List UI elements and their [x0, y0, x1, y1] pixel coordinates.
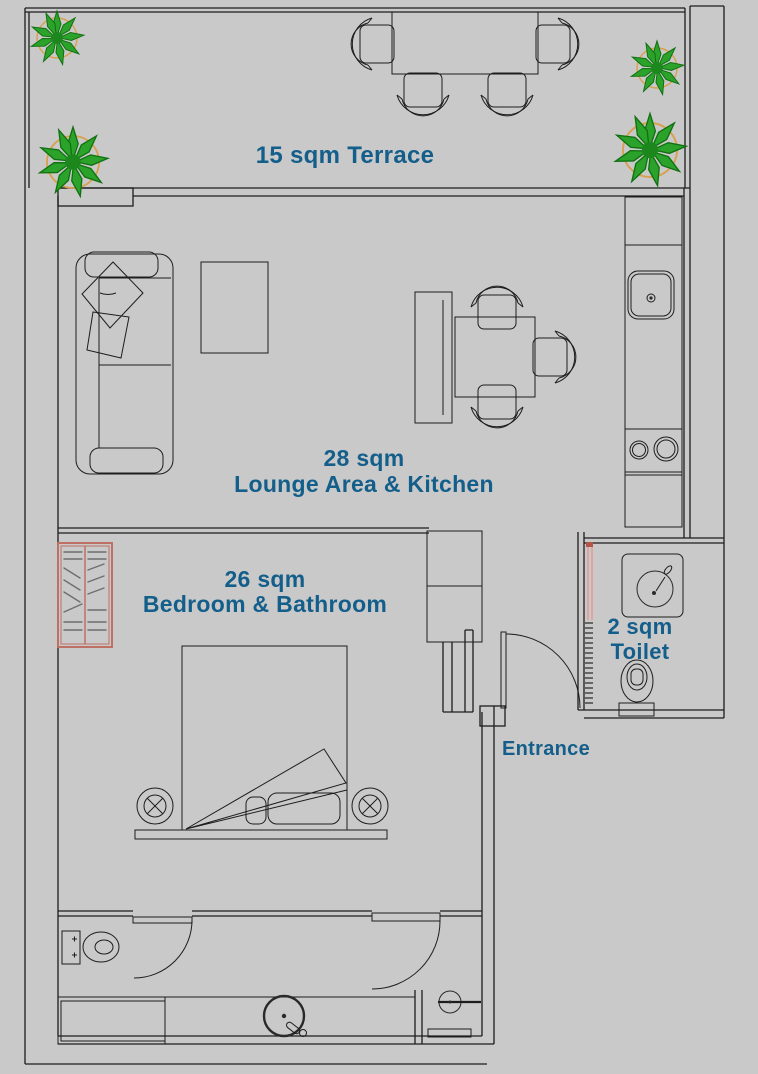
dining-chair [471, 286, 523, 329]
floor-plan: 15 sqm Terrace 28 sqm Lounge Area & Kitc… [0, 0, 758, 1074]
dining-set [415, 286, 576, 428]
headboard [135, 830, 387, 839]
sofa-pillow [82, 262, 143, 328]
shower-head [438, 991, 481, 1013]
sofa [76, 252, 173, 474]
bed-pillow [268, 793, 340, 824]
toilet-vanity [622, 554, 683, 617]
terrace-chair [397, 73, 449, 116]
room-label-toilet-area: 2 sqm [607, 614, 672, 639]
bathroom [58, 913, 481, 1044]
door-swing-arc [134, 920, 192, 978]
plant-icon [614, 114, 687, 187]
bedside-lamp [352, 788, 388, 824]
shower-door [372, 913, 440, 989]
terrace-room [30, 11, 687, 197]
wardrobe [58, 543, 112, 647]
entrance-door [501, 632, 580, 708]
room-label-terrace: 15 sqm Terrace [256, 142, 435, 169]
sofa-pillow [87, 312, 129, 358]
kitchen-counter [625, 197, 682, 527]
room-label-bedroom-area: 26 sqm [224, 566, 305, 592]
door-leaf [372, 913, 440, 921]
plant-icon [38, 127, 108, 198]
room-label-bedroom-name: Bedroom & Bathroom [143, 591, 387, 617]
bathroom-round-washbasin [264, 996, 307, 1037]
terrace-chair [351, 18, 394, 70]
toilet-sliding-door [586, 542, 593, 704]
cooktop-burner [654, 437, 678, 461]
bathroom-door [133, 917, 192, 978]
terrace-chair [536, 18, 579, 70]
plant-icon [30, 11, 84, 65]
bathroom-cabinet [58, 997, 165, 1044]
kitchen-cooktop [625, 429, 682, 472]
door-swing-arc [506, 634, 580, 708]
room-label-lounge-area: 28 sqm [323, 445, 404, 471]
toilet-washbasin [637, 571, 673, 607]
kitchen-sink [628, 271, 674, 319]
bathroom-wc [62, 931, 119, 964]
door-swing-arc [372, 921, 440, 989]
plant-icon [630, 41, 684, 95]
door-leaf [133, 917, 192, 923]
dining-bench [415, 292, 452, 423]
dining-chair [533, 331, 576, 383]
floor-plan-page: 15 sqm Terrace 28 sqm Lounge Area & Kitc… [0, 0, 758, 1074]
bedside-lamp [137, 788, 173, 824]
toilet-wc [619, 660, 654, 716]
room-label-entrance: Entrance [502, 738, 590, 760]
terrace-dining-table [392, 12, 538, 74]
wc-cistern [62, 931, 80, 964]
dining-chair [471, 385, 523, 428]
door-leaf [501, 632, 506, 708]
lounge-room [76, 252, 576, 474]
side-table [201, 262, 268, 353]
kitchen [625, 197, 682, 527]
room-label-lounge-name: Lounge Area & Kitchen [234, 471, 494, 497]
closet [427, 531, 482, 642]
double-bed [135, 646, 388, 839]
terrace-chair [481, 73, 533, 116]
room-label-toilet-name: Toilet [611, 639, 670, 664]
